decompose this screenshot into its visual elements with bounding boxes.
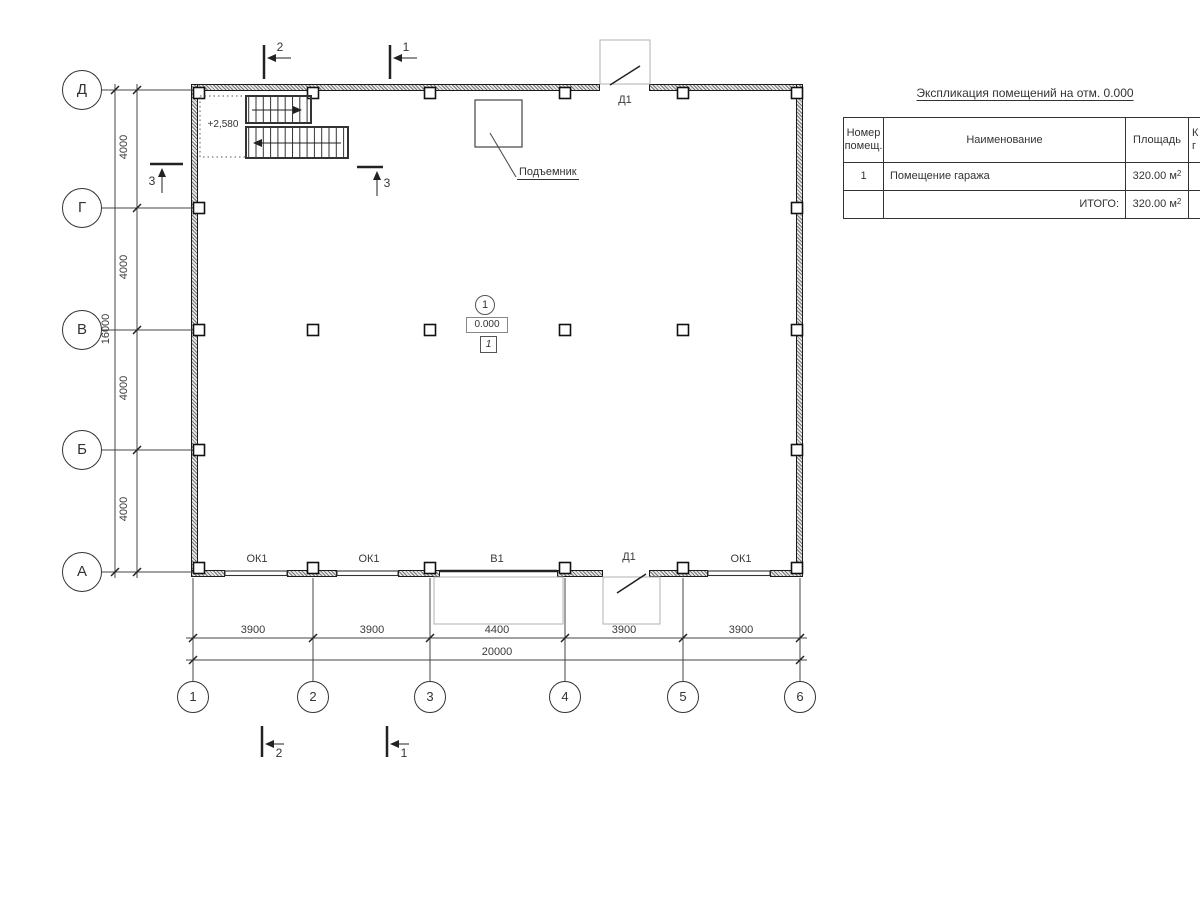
area-sup: 2	[1177, 169, 1181, 178]
window-1	[225, 571, 287, 576]
door-top-leaf	[610, 66, 640, 85]
room-index-box: 1	[480, 336, 497, 353]
section-2-top-label: 2	[272, 40, 288, 54]
landing-level-label: +2,580	[200, 119, 246, 130]
header-category-line2: г	[1192, 140, 1196, 153]
total-area-value: 320.00 м	[1133, 198, 1177, 211]
table-title: Экспликация помещений на отм. 0.000	[880, 86, 1170, 100]
cell-room-area: 320.00 м2	[1126, 163, 1189, 191]
dim-2-3: 3900	[342, 624, 402, 636]
door-top-porch	[600, 40, 650, 84]
axis-row-g: Г	[62, 188, 102, 228]
header-name: Наименование	[884, 118, 1126, 163]
axis-col-5: 5	[667, 681, 699, 713]
section-3-right-label: 3	[379, 176, 395, 190]
window-1-label: ОК1	[240, 553, 274, 565]
window-2-label: ОК1	[352, 553, 386, 565]
axis-row-a: А	[62, 552, 102, 592]
lift-symbol	[475, 100, 522, 177]
window-3-label: ОК1	[724, 553, 758, 565]
section-3-left-label: 3	[144, 174, 160, 188]
dim-5-6: 3900	[711, 624, 771, 636]
cell-room-name: Помещение гаража	[884, 163, 1126, 191]
axis-col-2: 2	[297, 681, 329, 713]
dim-b-a: 4000	[118, 479, 130, 539]
cell-total-area: 320.00 м2	[1126, 191, 1189, 218]
total-area-sup: 2	[1177, 197, 1181, 206]
header-category-line1: К	[1192, 127, 1198, 140]
rooms-table: Номер помещ. Наименование Площадь К г 1 …	[843, 117, 1200, 219]
dim-g-v: 4000	[118, 237, 130, 297]
area-value: 320.00 м	[1133, 170, 1177, 183]
room-level-marker: 0.000	[466, 317, 508, 333]
dim-1-2: 3900	[223, 624, 283, 636]
dim-d-g: 4000	[118, 117, 130, 177]
dim-4-5: 3900	[594, 624, 654, 636]
dim-3-4: 4400	[467, 624, 527, 636]
gate-apron	[434, 577, 563, 624]
axis-col-1: 1	[177, 681, 209, 713]
dim-total-v: 16000	[100, 299, 112, 359]
door-top-label: Д1	[609, 94, 641, 106]
cell-total-label: ИТОГО:	[884, 191, 1126, 218]
window-2	[337, 571, 398, 576]
window-3	[708, 571, 770, 576]
cell-total-empty	[844, 191, 884, 218]
header-room-number: Номер помещ.	[844, 118, 884, 163]
cell-total-category	[1189, 191, 1200, 218]
room-number-bubble: 1	[475, 295, 495, 315]
floor-plan-sheet: Д Г В Б А 1 2 3 4 5 6 3900 3900 4400 390…	[0, 0, 1200, 900]
dim-total-h: 20000	[467, 646, 527, 658]
section-1-bottom-label: 1	[396, 746, 412, 760]
section-2-bottom-label: 2	[271, 746, 287, 760]
axis-col-3: 3	[414, 681, 446, 713]
axis-row-d: Д	[62, 70, 102, 110]
axis-col-4: 4	[549, 681, 581, 713]
axis-col-6: 6	[784, 681, 816, 713]
section-1-top-label: 1	[398, 40, 414, 54]
header-area: Площадь	[1126, 118, 1189, 163]
lift-label: Подъемник	[517, 166, 579, 180]
door-bottom-label: Д1	[613, 551, 645, 563]
cell-room-category	[1189, 163, 1200, 191]
header-category: К г	[1189, 118, 1200, 163]
cell-room-number: 1	[844, 163, 884, 191]
gate-label: В1	[482, 553, 512, 565]
axis-row-b: Б	[62, 430, 102, 470]
dim-v-b: 4000	[118, 358, 130, 418]
axis-lines-left	[102, 84, 198, 578]
axis-row-v: В	[62, 310, 102, 350]
